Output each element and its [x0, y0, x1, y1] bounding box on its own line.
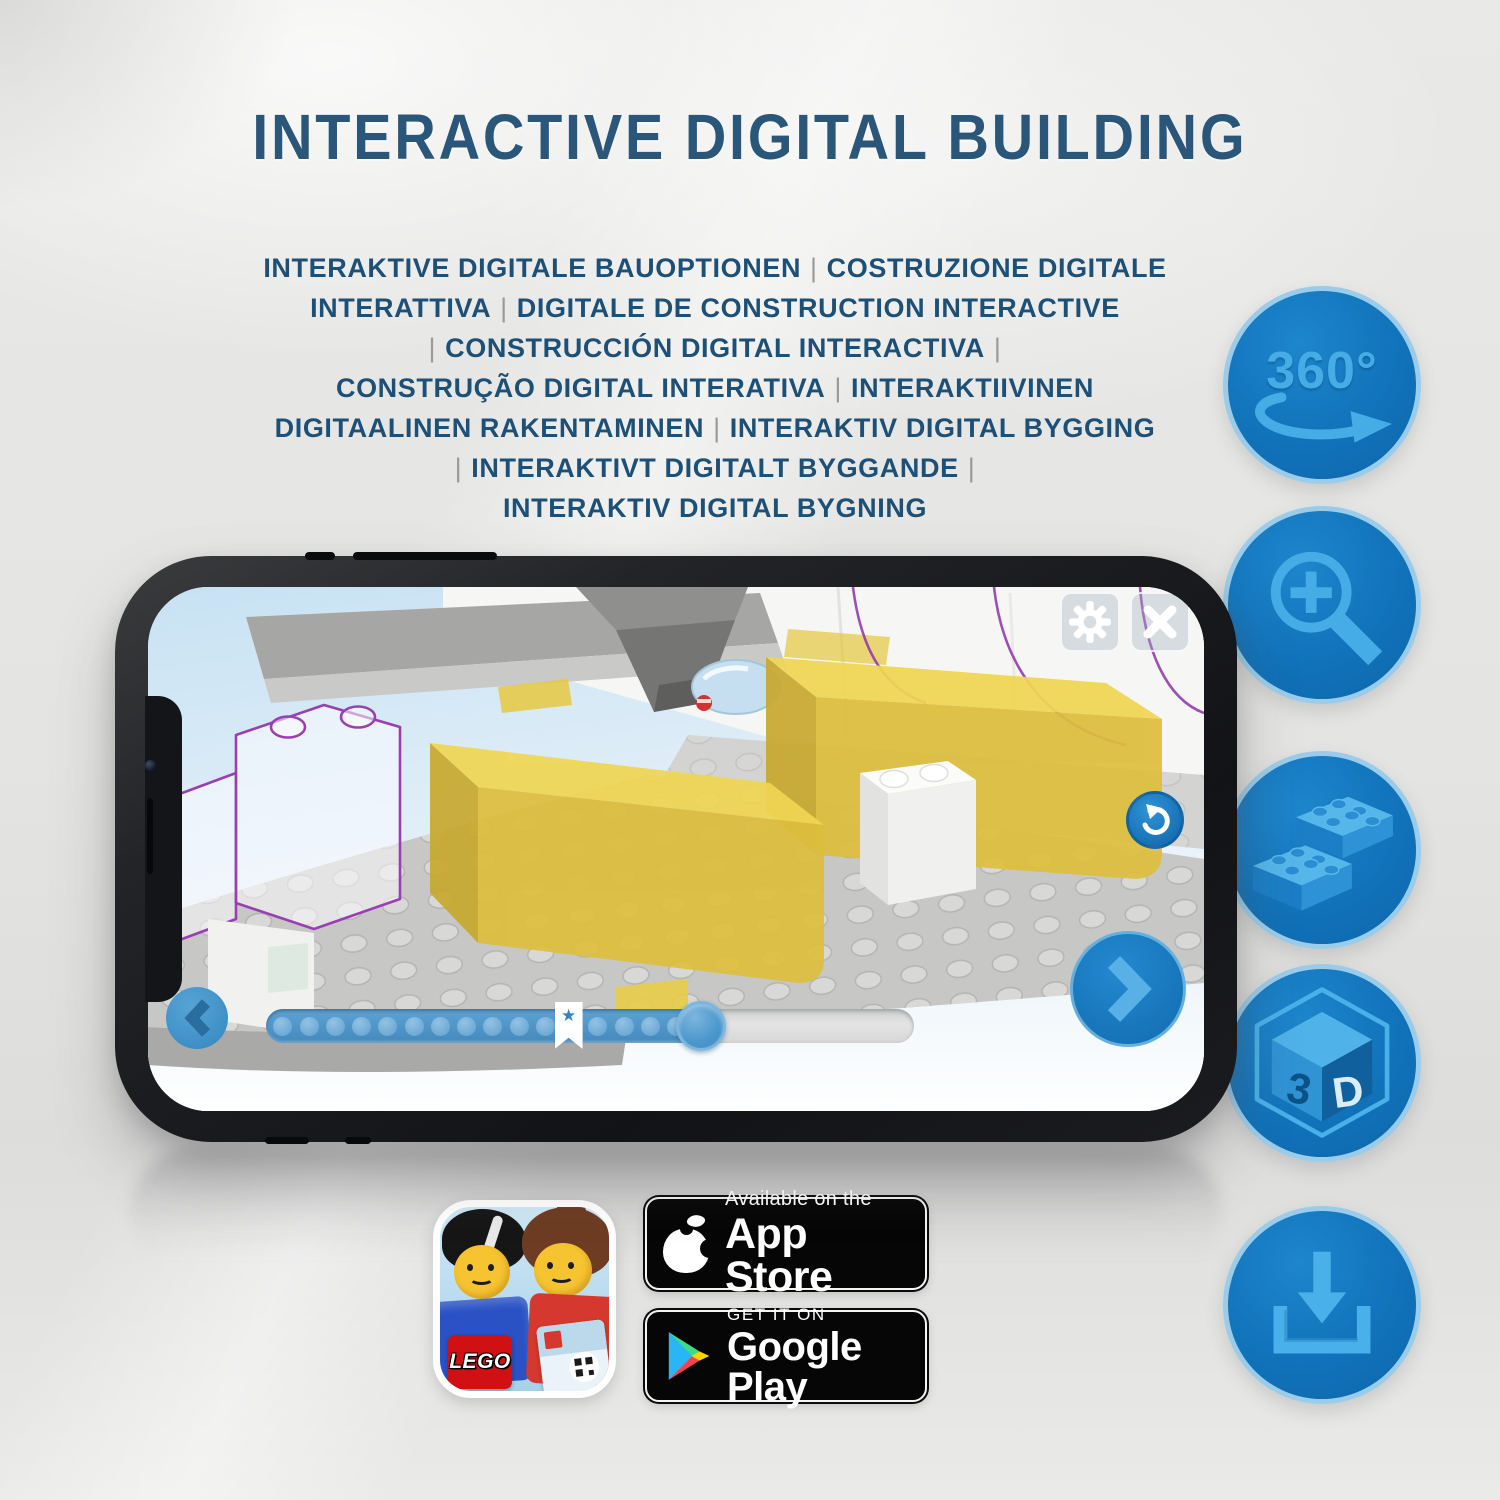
qr-code-icon — [567, 1350, 600, 1383]
page-background: INTERACTIVE DIGITAL BUILDING INTERAKTIVE… — [0, 0, 1500, 1500]
page-title-text: INTERACTIVE DIGITAL BUILDING — [252, 100, 1247, 174]
separator: | — [704, 413, 730, 443]
google-play-name: Google Play — [727, 1327, 925, 1407]
lego-brick-icon — [1247, 780, 1397, 920]
subtitle-line: DIGITAALINEN RAKENTAMINEN|INTERAKTIV DIG… — [70, 408, 1360, 448]
minifig-girl-bun — [556, 1200, 586, 1225]
chevron-right-icon — [1100, 956, 1156, 1022]
progress-dot — [352, 1017, 371, 1036]
rotate-view-button[interactable] — [1126, 791, 1184, 849]
progress-dot — [588, 1017, 607, 1036]
apple-logo-icon — [663, 1215, 711, 1273]
feature-zoom — [1223, 506, 1421, 704]
separator: | — [491, 293, 517, 323]
phone-power-button — [353, 552, 497, 560]
progress-dot — [300, 1017, 319, 1036]
cube-face-d-label: D — [1330, 1066, 1367, 1118]
page-title: INTERACTIVE DIGITAL BUILDING — [0, 100, 1500, 174]
phone-port — [345, 1137, 371, 1144]
close-button[interactable] — [1130, 592, 1190, 652]
google-play-badge[interactable]: GET IT ON Google Play — [645, 1310, 927, 1402]
download-icon — [1252, 1242, 1392, 1368]
build-progress-slider[interactable]: ★ — [266, 1009, 914, 1043]
subtitle-line: CONSTRUÇÃO DIGITAL INTERATIVA|INTERAKTII… — [70, 368, 1360, 408]
3d-cube-icon: 3 D — [1247, 984, 1397, 1142]
app-store-tagline: Available on the — [725, 1189, 925, 1209]
phone-frame: ★ — [115, 556, 1237, 1142]
subtitle-line: INTERAKTIVE DIGITALE BAUOPTIONEN|COSTRUZ… — [70, 248, 1360, 288]
google-play-logo-icon — [661, 1327, 713, 1385]
360-rotation-arrow-icon — [1248, 391, 1396, 443]
lego-app-icon[interactable]: LEGO — [433, 1200, 616, 1398]
subtitle-line: |CONSTRUCCIÓN DIGITAL INTERACTIVA| — [70, 328, 1360, 368]
booklet-red-square — [544, 1330, 563, 1349]
feature-3d-view: 3 D — [1223, 964, 1421, 1162]
separator: | — [959, 453, 985, 483]
progress-dot — [431, 1017, 450, 1036]
separator: | — [420, 333, 446, 363]
minifig-girl-face — [534, 1243, 592, 1297]
subtitle-line: INTERAKTIV DIGITAL BYGNING — [70, 488, 1360, 528]
instruction-booklet — [536, 1319, 612, 1397]
app-store-badge[interactable]: Available on the App Store — [645, 1197, 927, 1290]
phone-screen: ★ — [148, 587, 1204, 1111]
separator: | — [825, 373, 851, 403]
progress-dot — [378, 1017, 397, 1036]
progress-dots — [266, 1009, 720, 1043]
feature-360-rotation: 360° — [1223, 286, 1421, 484]
phone-volume-button — [305, 552, 335, 560]
progress-dot — [536, 1017, 555, 1036]
feature-download — [1223, 1206, 1421, 1404]
progress-dot — [641, 1017, 660, 1036]
gear-icon — [1069, 601, 1111, 643]
app-store-name: App Store — [725, 1213, 925, 1299]
lego-logo: LEGO — [448, 1335, 512, 1389]
chevron-left-icon — [180, 998, 214, 1038]
feature-brick-options — [1223, 751, 1421, 949]
subtitle-line: INTERATTIVA|DIGITALE DE CONSTRUCTION INT… — [70, 288, 1360, 328]
progress-dot — [326, 1017, 345, 1036]
zoom-in-magnifier-icon — [1258, 541, 1386, 669]
progress-handle[interactable] — [676, 1001, 726, 1051]
subtitle-line: |INTERAKTIVT DIGITALT BYGGANDE| — [70, 448, 1360, 488]
separator: | — [446, 453, 472, 483]
phone-camera — [145, 760, 156, 771]
progress-dot — [273, 1017, 292, 1036]
subtitle: INTERAKTIVE DIGITALE BAUOPTIONEN|COSTRUZ… — [70, 248, 1360, 528]
google-play-tagline: GET IT ON — [727, 1306, 925, 1323]
rotate-icon — [1138, 803, 1172, 837]
minifig-boy-face — [454, 1245, 510, 1299]
previous-step-button[interactable] — [166, 987, 228, 1049]
close-icon — [1142, 604, 1178, 640]
progress-dot — [510, 1017, 529, 1036]
phone-earpiece — [147, 798, 153, 874]
separator: | — [985, 333, 1011, 363]
progress-dot — [615, 1017, 634, 1036]
settings-button[interactable] — [1060, 592, 1120, 652]
phone-notch — [145, 696, 182, 1002]
progress-dot — [457, 1017, 476, 1036]
progress-dot — [405, 1017, 424, 1036]
progress-dot — [483, 1017, 502, 1036]
white-brick — [860, 761, 976, 905]
lego-logo-text: LEGO — [449, 1350, 511, 1374]
separator: | — [801, 253, 827, 283]
phone-speaker-port — [265, 1137, 309, 1144]
next-step-button[interactable] — [1070, 931, 1186, 1047]
